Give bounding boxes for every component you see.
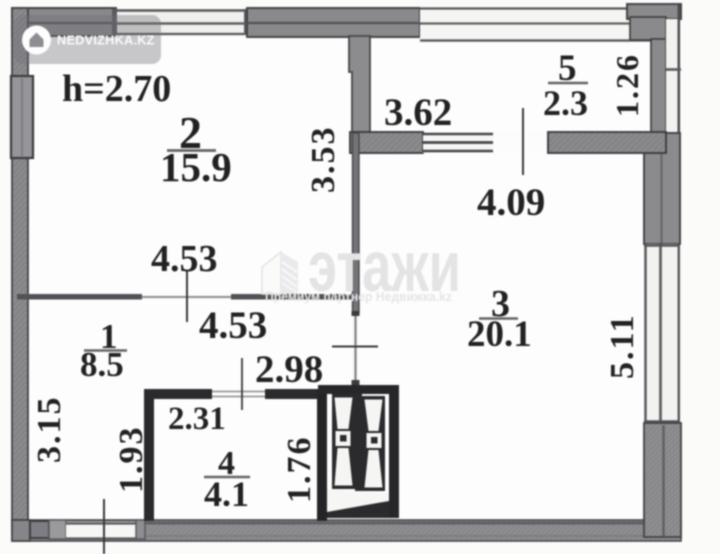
svg-text:4.1: 4.1 xyxy=(204,474,249,514)
svg-text:2.98: 2.98 xyxy=(255,348,323,391)
svg-text:1.76: 1.76 xyxy=(281,436,318,504)
svg-text:NEDVIZHKA.KZ: NEDVIZHKA.KZ xyxy=(57,33,155,48)
svg-text:3.15: 3.15 xyxy=(31,396,68,464)
svg-text:4.09: 4.09 xyxy=(477,181,545,224)
svg-text:5.11: 5.11 xyxy=(604,313,641,379)
svg-text:15.9: 15.9 xyxy=(160,144,232,190)
svg-text:3.53: 3.53 xyxy=(305,126,342,194)
svg-text:4.53: 4.53 xyxy=(199,304,267,347)
svg-text:1.26: 1.26 xyxy=(609,53,645,117)
svg-text:20.1: 20.1 xyxy=(467,314,532,355)
svg-text:8.5: 8.5 xyxy=(80,345,124,384)
svg-text:2.3: 2.3 xyxy=(543,83,588,123)
svg-text:3.62: 3.62 xyxy=(384,91,452,134)
svg-text:1.93: 1.93 xyxy=(113,426,150,494)
svg-text:Премиум партнер Недвижка.kz: Премиум партнер Недвижка.kz xyxy=(265,289,452,304)
svg-text:2.31: 2.31 xyxy=(168,401,226,437)
svg-text:h=2.70: h=2.70 xyxy=(62,68,171,110)
svg-text:4.53: 4.53 xyxy=(151,238,218,280)
